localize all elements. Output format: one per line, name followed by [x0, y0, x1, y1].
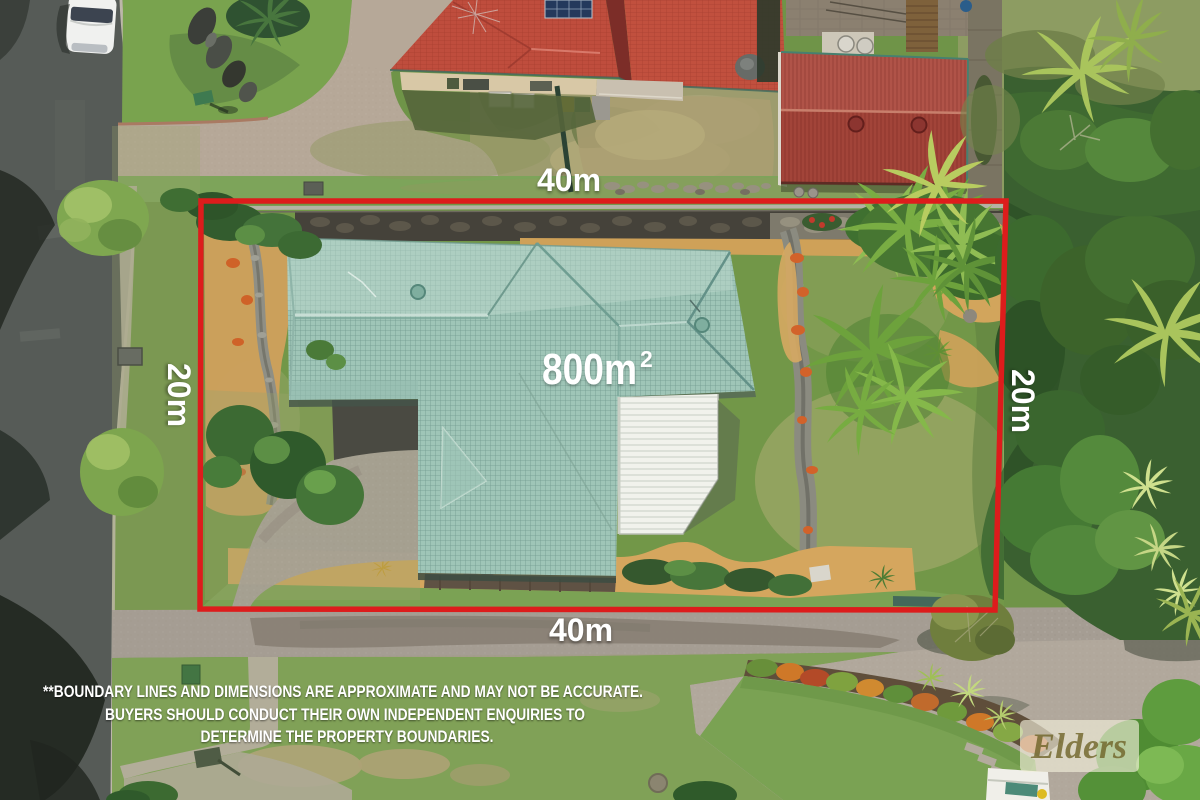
- svg-text:40m: 40m: [549, 612, 613, 648]
- svg-text:20m: 20m: [161, 363, 197, 427]
- svg-text:20m: 20m: [1005, 369, 1041, 433]
- svg-text:BUYERS SHOULD CONDUCT THEIR OW: BUYERS SHOULD CONDUCT THEIR OWN INDEPEND…: [105, 706, 585, 724]
- svg-text:2: 2: [640, 346, 653, 372]
- svg-text:**BOUNDARY LINES AND DIMENSION: **BOUNDARY LINES AND DIMENSIONS ARE APPR…: [43, 683, 643, 701]
- svg-text:800m: 800m: [542, 345, 637, 394]
- svg-text:DETERMINE THE PROPERTY BOUNDAR: DETERMINE THE PROPERTY BOUNDARIES.: [201, 728, 494, 746]
- svg-text:40m: 40m: [537, 162, 601, 198]
- svg-text:Elders: Elders: [1030, 726, 1127, 766]
